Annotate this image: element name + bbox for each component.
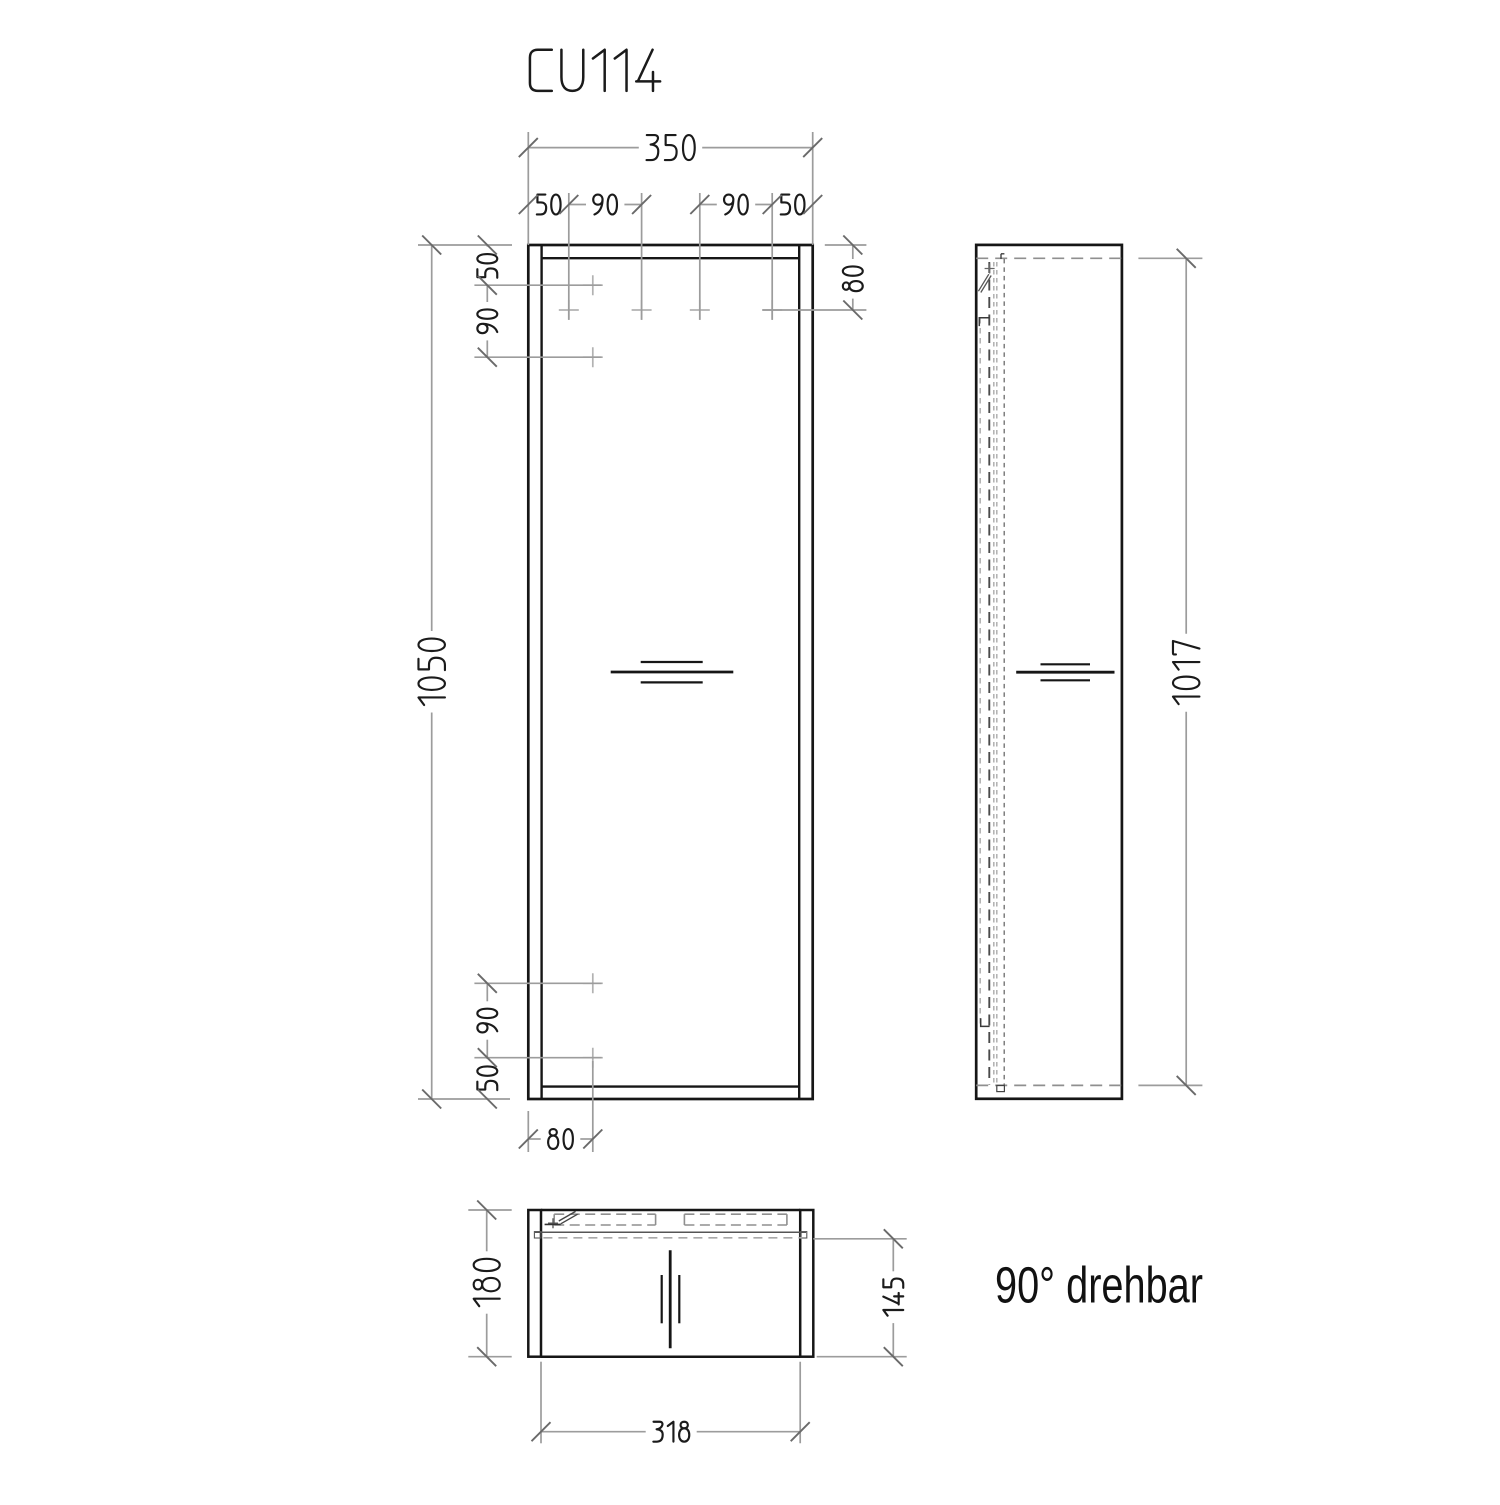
svg-text:90° drehbar: 90° drehbar [995, 1257, 1203, 1314]
